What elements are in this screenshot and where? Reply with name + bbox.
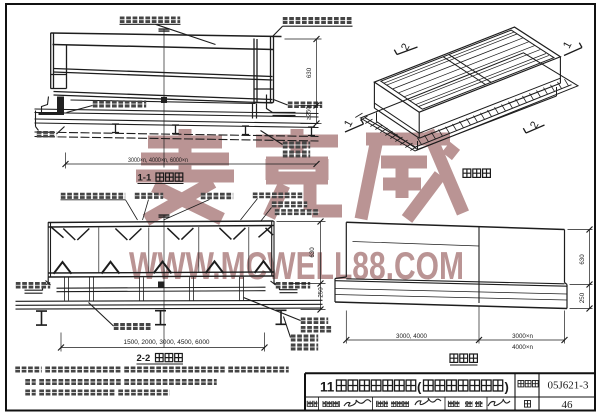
svg-text:3000×n: 3000×n xyxy=(512,333,533,340)
svg-text:≥250: ≥250 xyxy=(306,106,313,120)
svg-text:630: 630 xyxy=(306,67,313,78)
svg-text:2-2: 2-2 xyxy=(137,353,151,364)
svg-text:250: 250 xyxy=(318,287,325,298)
svg-text:05J621-3: 05J621-3 xyxy=(548,380,589,392)
svg-text:46: 46 xyxy=(562,399,574,411)
svg-text:(: ( xyxy=(417,380,422,395)
svg-text:WWW.MCWELL88.COM: WWW.MCWELL88.COM xyxy=(129,245,464,288)
svg-text:3000×n, 4000×n, 6000×n: 3000×n, 4000×n, 6000×n xyxy=(128,157,188,164)
svg-text:250: 250 xyxy=(579,292,586,303)
svg-text:11: 11 xyxy=(320,380,335,395)
svg-text:3000, 4000: 3000, 4000 xyxy=(396,333,428,340)
svg-text:): ) xyxy=(505,380,509,395)
svg-text:4000×n: 4000×n xyxy=(512,344,533,351)
svg-text:1500, 2000, 3000, 4500, 6000: 1500, 2000, 3000, 4500, 6000 xyxy=(124,339,211,346)
svg-text:630: 630 xyxy=(309,247,316,258)
svg-text:1-1: 1-1 xyxy=(138,173,152,184)
svg-text:630: 630 xyxy=(579,254,586,265)
